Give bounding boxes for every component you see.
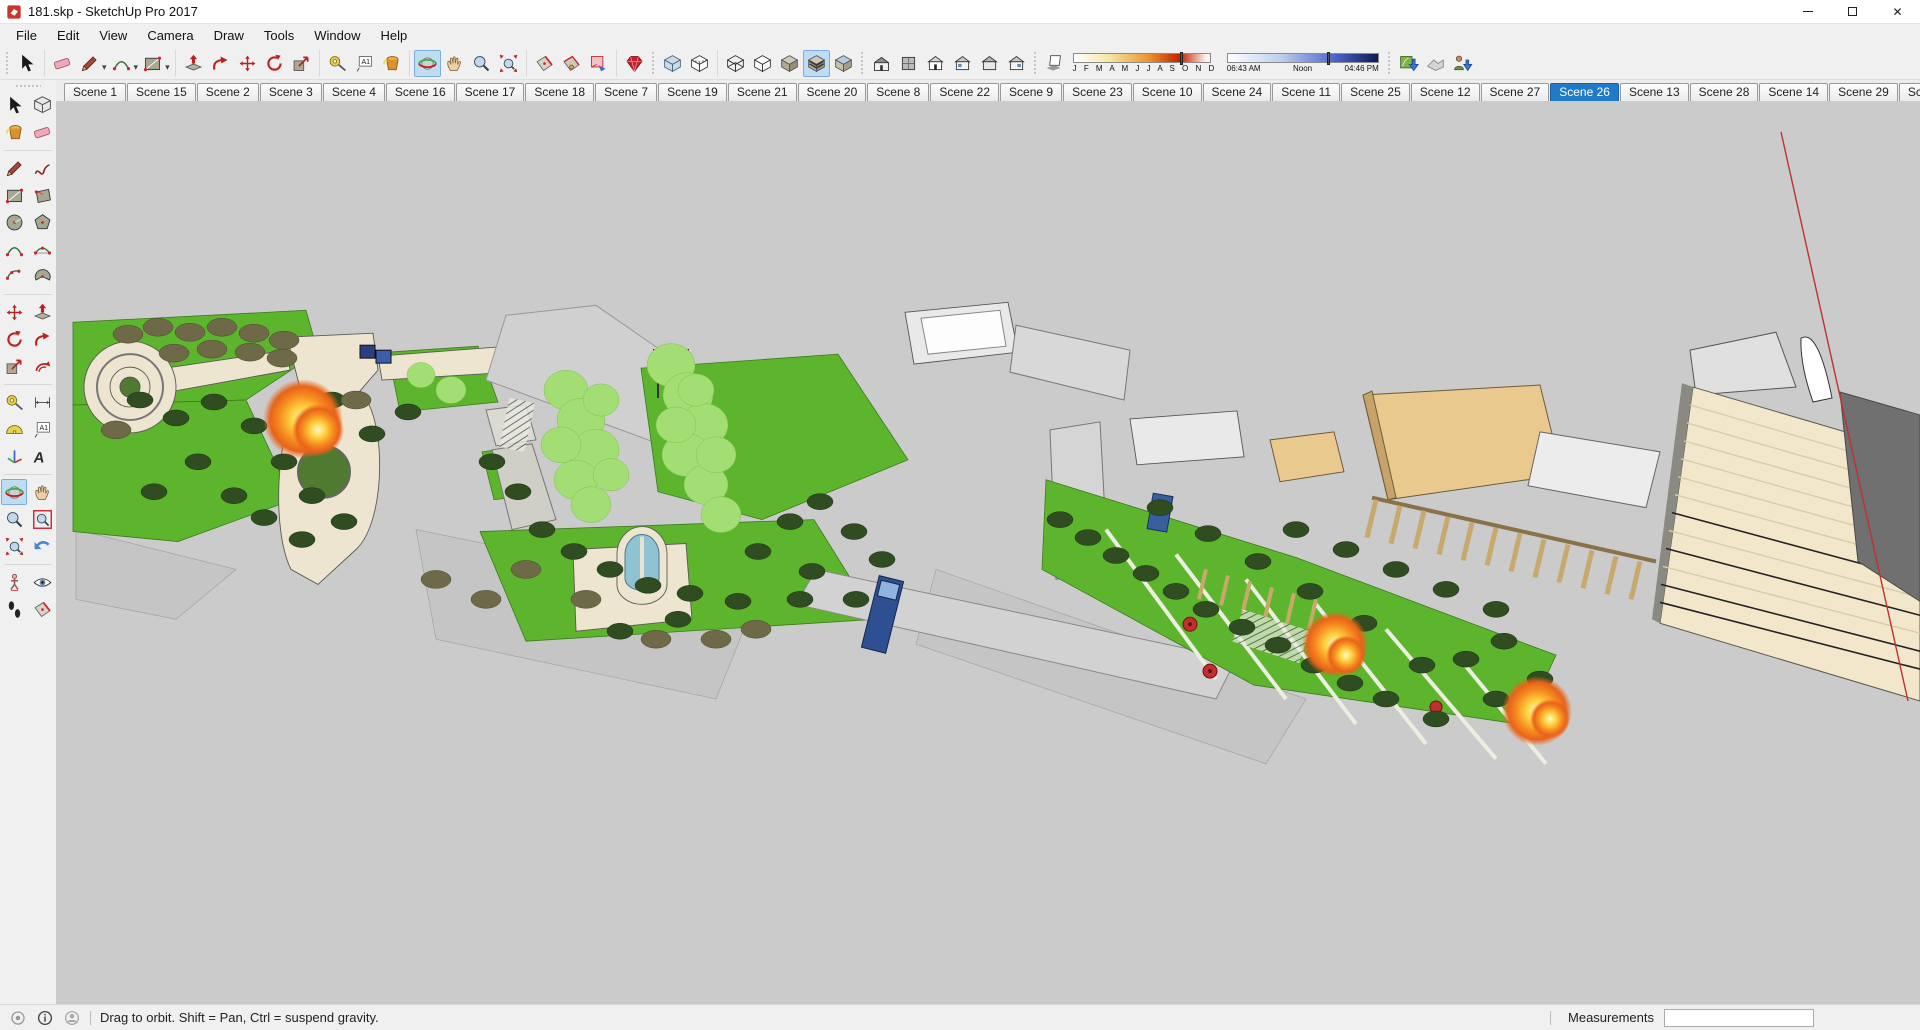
toolbar-drag-handle[interactable]: [5, 51, 10, 75]
zoomext-icon: [498, 53, 519, 74]
rotate-tool-button[interactable]: [1, 326, 27, 352]
tree: [1337, 675, 1363, 691]
minimize-button[interactable]: [1785, 0, 1830, 23]
rect-icon: [142, 53, 163, 74]
model-canvas[interactable]: [56, 101, 1920, 1004]
shaded-button[interactable]: [776, 50, 803, 77]
orbit-icon: [4, 482, 25, 503]
offset-tool-button[interactable]: [29, 353, 55, 379]
tree: [561, 544, 587, 560]
tree: [1245, 553, 1271, 569]
tree: [359, 426, 385, 442]
menu-view[interactable]: View: [89, 26, 137, 45]
arc-icon: [111, 53, 132, 74]
zoomext-icon: [4, 536, 25, 557]
scene-tab-scene-17[interactable]: Scene 17: [456, 83, 525, 101]
tree: [163, 410, 189, 426]
toolbar-separator: [717, 50, 718, 76]
tree: [143, 318, 173, 336]
arc2-icon: [32, 239, 53, 260]
x-ray-button[interactable]: [659, 50, 686, 77]
orbit-icon: [417, 53, 438, 74]
polygon-tool-button[interactable]: [29, 209, 55, 235]
scene-tab-scene-13[interactable]: Scene 13: [1620, 83, 1689, 101]
paint-bucket-tool-button[interactable]: [1, 119, 27, 145]
pan-tool-button[interactable]: [29, 479, 55, 505]
tree: [583, 384, 619, 416]
eraser-button[interactable]: [49, 50, 76, 77]
left-view-button[interactable]: [1003, 50, 1030, 77]
rotate-icon: [4, 329, 25, 350]
paint-bucket-button[interactable]: [378, 50, 405, 77]
axes-tool-button[interactable]: [1, 443, 27, 469]
section-icon: [32, 599, 53, 620]
close-button[interactable]: ✕: [1875, 0, 1920, 23]
toolbar-separator: [44, 50, 45, 76]
shadow-date-slider[interactable]: J F M A M J J A S O N D: [1073, 53, 1217, 73]
svg-text:A: A: [32, 449, 45, 466]
tape-icon: [327, 53, 348, 74]
tree: [436, 377, 466, 404]
tree: [239, 324, 269, 342]
3d-text-tool-button[interactable]: A: [29, 443, 55, 469]
palette-separator: [4, 384, 52, 385]
tree: [635, 577, 661, 593]
dimension-icon: [32, 392, 53, 413]
zoom-icon: [471, 53, 492, 74]
scene-tab-scene-24[interactable]: Scene 24: [1203, 83, 1272, 101]
tree: [235, 343, 265, 361]
houseright-icon: [952, 53, 973, 74]
tree: [701, 497, 741, 533]
tree: [289, 532, 315, 548]
scale-button[interactable]: [288, 50, 315, 77]
scene-tab-scene-19[interactable]: Scene 19: [658, 83, 727, 101]
freehand-tool-button[interactable]: [29, 155, 55, 181]
section-plane-button[interactable]: [531, 50, 558, 77]
geolocation-icon[interactable]: [9, 1009, 27, 1027]
cubexray-icon: [662, 53, 683, 74]
scene-tab-scene-23[interactable]: Scene 23: [1063, 83, 1132, 101]
white-sail: [1801, 337, 1832, 402]
tree: [395, 404, 421, 420]
menu-window[interactable]: Window: [304, 26, 370, 45]
pie-icon: [32, 266, 53, 287]
tree: [207, 318, 237, 336]
tree: [571, 590, 601, 608]
cubeshaded-icon: [779, 53, 800, 74]
followme-icon: [210, 53, 231, 74]
scene-tab-scene-20[interactable]: Scene 20: [798, 83, 867, 101]
pie-tool-button[interactable]: [29, 263, 55, 289]
tree: [331, 514, 357, 530]
tape-measure-tool-button[interactable]: [1, 389, 27, 415]
palette-drag-handle[interactable]: [15, 84, 41, 89]
cubemono-icon: [833, 53, 854, 74]
zoom-tool-button[interactable]: [1, 506, 27, 532]
text-button[interactable]: A1: [351, 50, 378, 77]
cubeback-icon: [689, 53, 710, 74]
tree: [1433, 581, 1459, 597]
tree: [471, 590, 501, 608]
arc-button[interactable]: [108, 50, 135, 77]
photo-textures-button[interactable]: [1449, 50, 1476, 77]
three-point-arc-tool-button[interactable]: [1, 263, 27, 289]
walk-icon: [4, 599, 25, 620]
shadow-time-labels: 06:43 AMNoon04:46 PM: [1227, 64, 1379, 73]
cursor-icon: [16, 53, 37, 74]
tree: [529, 522, 555, 538]
terrain-icon: [1425, 53, 1446, 74]
rotate-icon: [264, 53, 285, 74]
arc3-icon: [4, 266, 25, 287]
arc-tool-button[interactable]: [1, 236, 27, 262]
line-button[interactable]: [76, 50, 103, 77]
tape-icon: [4, 392, 25, 413]
push-pull-button[interactable]: [180, 50, 207, 77]
tree: [1229, 619, 1255, 635]
tree: [843, 591, 869, 607]
move-icon: [237, 53, 258, 74]
rotate-button[interactable]: [261, 50, 288, 77]
tree: [677, 585, 703, 601]
svg-text:A1: A1: [361, 58, 370, 65]
zoom-window-tool-button[interactable]: [29, 506, 55, 532]
tree: [777, 514, 803, 530]
tree: [1047, 512, 1073, 528]
housetop-icon: [898, 53, 919, 74]
polygon-icon: [32, 212, 53, 233]
text3d-icon: A: [32, 446, 53, 467]
top-view-button[interactable]: [895, 50, 922, 77]
follow-me-tool-button[interactable]: [29, 326, 55, 352]
tree: [101, 421, 131, 439]
followme-icon: [32, 329, 53, 350]
walk-tool-button[interactable]: [1, 596, 27, 622]
scene-tab-scene-8[interactable]: Scene 8: [867, 83, 929, 101]
measurements-separator: [1550, 1011, 1551, 1025]
tree: [571, 487, 611, 523]
palette-separator: [4, 294, 52, 295]
tree: [869, 552, 895, 568]
tree: [607, 623, 633, 639]
tree: [141, 484, 167, 500]
tree: [678, 374, 714, 406]
tree: [113, 325, 143, 343]
main-toolbar: ▾▾▾A1J F M A M J J A S O N D06:43 AMNoon…: [0, 47, 1920, 80]
shaded-with-textures-button[interactable]: [803, 50, 830, 77]
tree: [1409, 657, 1435, 673]
scene-tab-scene-1[interactable]: Scene 1: [64, 83, 126, 101]
wireframe-button[interactable]: [722, 50, 749, 77]
axes-icon: [4, 446, 25, 467]
bucket-icon: [4, 122, 25, 143]
select-button[interactable]: [13, 50, 40, 77]
position-camera-tool-button[interactable]: [1, 569, 27, 595]
monochrome-button[interactable]: [830, 50, 857, 77]
make-component-tool-button[interactable]: [29, 92, 55, 118]
scene-tab-scene-15[interactable]: Scene 15: [127, 83, 196, 101]
toolbar-drag-handle[interactable]: [1033, 51, 1038, 75]
rotated-rectangle-tool-button[interactable]: [29, 182, 55, 208]
zoomwin-icon: [32, 509, 53, 530]
offset-icon: [32, 356, 53, 377]
line-tool-button[interactable]: [1, 155, 27, 181]
tree: [799, 563, 825, 579]
tree: [1163, 583, 1189, 599]
close-icon: ✕: [1892, 5, 1902, 19]
tree: [841, 524, 867, 540]
eraser-icon: [52, 53, 73, 74]
rectangle-button[interactable]: [139, 50, 166, 77]
scene-tab-scene-7[interactable]: Scene 7: [595, 83, 657, 101]
dimension-tool-button[interactable]: [29, 389, 55, 415]
hidden-line-button[interactable]: [749, 50, 776, 77]
display-section-planes-button[interactable]: [558, 50, 585, 77]
tree: [741, 620, 771, 638]
protractor-tool-button[interactable]: [1, 416, 27, 442]
scene-tab-scene-12[interactable]: Scene 12: [1411, 83, 1480, 101]
tree: [511, 560, 541, 578]
pan-button[interactable]: [441, 50, 468, 77]
front-view-button[interactable]: [922, 50, 949, 77]
status-bar: Drag to orbit. Shift = Pan, Ctrl = suspe…: [0, 1004, 1920, 1030]
menu-camera[interactable]: Camera: [137, 26, 203, 45]
scene-tab-scene-26[interactable]: Scene 26: [1550, 83, 1619, 101]
back-view-button[interactable]: [976, 50, 1003, 77]
tree: [541, 427, 581, 463]
tree: [185, 454, 211, 470]
tree: [787, 591, 813, 607]
right-view-button[interactable]: [949, 50, 976, 77]
tree: [1373, 691, 1399, 707]
rotrect-icon: [32, 185, 53, 206]
scene-tab-bar: Scene 1Scene 15Scene 2Scene 3Scene 4Scen…: [56, 80, 1920, 101]
tree: [696, 437, 736, 473]
tree: [221, 488, 247, 504]
minimize-icon: [1803, 11, 1813, 12]
cubehidden-icon: [752, 53, 773, 74]
houseiso-icon: [871, 53, 892, 74]
tree: [807, 494, 833, 510]
toolbar-drag-handle[interactable]: [651, 51, 656, 75]
circle-tool-button[interactable]: [1, 209, 27, 235]
scene-tab-scene-18[interactable]: Scene 18: [525, 83, 594, 101]
tree: [1193, 601, 1219, 617]
rectangle-tool-button[interactable]: [1, 182, 27, 208]
pencil-icon: [79, 53, 100, 74]
measurements-input[interactable]: [1664, 1009, 1814, 1027]
circle-icon: [4, 212, 25, 233]
pan-icon: [32, 482, 53, 503]
shadow-time-slider[interactable]: 06:43 AMNoon04:46 PM: [1227, 53, 1379, 73]
move-tool-button[interactable]: [1, 299, 27, 325]
scene-tab-scene-9[interactable]: Scene 9: [1000, 83, 1062, 101]
tree: [1423, 711, 1449, 727]
sectionp-icon: [561, 53, 582, 74]
scale-icon: [291, 53, 312, 74]
tree: [656, 407, 696, 443]
tree: [597, 561, 623, 577]
restore-button[interactable]: [1830, 0, 1875, 23]
tree: [251, 510, 277, 526]
menu-help[interactable]: Help: [371, 26, 418, 45]
tree: [267, 349, 297, 367]
menu-edit[interactable]: Edit: [47, 26, 89, 45]
measurements-label: Measurements: [1568, 1010, 1654, 1025]
scene-tab-scene-22[interactable]: Scene 22: [930, 83, 999, 101]
menu-bar: FileEditViewCameraDrawToolsWindowHelp: [0, 24, 1920, 47]
section-icon: [534, 53, 555, 74]
eye-icon: [32, 572, 53, 593]
freehand-icon: [32, 158, 53, 179]
scale-tool-button[interactable]: [1, 353, 27, 379]
model-viewport[interactable]: [56, 101, 1920, 1004]
pan-icon: [444, 53, 465, 74]
eraser-icon: [32, 122, 53, 143]
tree: [159, 344, 189, 362]
menu-tools[interactable]: Tools: [254, 26, 304, 45]
look-around-tool-button[interactable]: [29, 569, 55, 595]
scene-tab-scene-11[interactable]: Scene 11: [1272, 83, 1340, 101]
palette-separator: [4, 150, 52, 151]
move-icon: [4, 302, 25, 323]
pushpull-icon: [32, 302, 53, 323]
tree: [1265, 637, 1291, 653]
two-point-arc-tool-button[interactable]: [29, 236, 55, 262]
push-pull-tool-button[interactable]: [29, 299, 55, 325]
scene-tab-scene-30[interactable]: Scene 30: [1899, 83, 1920, 101]
scene-tab-scene-28[interactable]: Scene 28: [1690, 83, 1759, 101]
sketchup-logo-icon: [6, 4, 22, 20]
scene-tab-scene-4[interactable]: Scene 4: [323, 83, 385, 101]
tree: [1075, 530, 1101, 546]
houseback-icon: [979, 53, 1000, 74]
tree: [299, 488, 325, 504]
zoom-icon: [4, 509, 25, 530]
poscam-icon: [4, 572, 25, 593]
move-button[interactable]: [234, 50, 261, 77]
tree: [201, 394, 227, 410]
orbit-button[interactable]: [414, 50, 441, 77]
component-icon: [32, 95, 53, 116]
tree: [175, 323, 205, 341]
toolbar-drag-handle[interactable]: [1387, 51, 1392, 75]
tree: [1383, 561, 1409, 577]
tree: [421, 570, 451, 588]
follow-me-button[interactable]: [207, 50, 234, 77]
cubewire-icon: [725, 53, 746, 74]
scene-tab-scene-2[interactable]: Scene 2: [197, 83, 259, 101]
tree: [127, 392, 153, 408]
tree: [745, 544, 771, 560]
tree: [269, 331, 299, 349]
tree: [341, 391, 371, 409]
bucket-icon: [381, 53, 402, 74]
shadowtog-icon: [1044, 53, 1065, 74]
status-separator: [90, 1011, 91, 1025]
pencil-icon: [4, 158, 25, 179]
toggle-shadows-button[interactable]: [1041, 50, 1068, 77]
toolbar-separator: [319, 50, 320, 76]
section-plane-tool-button[interactable]: [29, 596, 55, 622]
gem-icon: [624, 53, 645, 74]
window-title: 181.skp - SketchUp Pro 2017: [28, 4, 198, 19]
menu-file[interactable]: File: [6, 26, 47, 45]
scene-tab-scene-21[interactable]: Scene 21: [728, 83, 797, 101]
zoom-extents-button[interactable]: [495, 50, 522, 77]
scene-tab-scene-3[interactable]: Scene 3: [260, 83, 322, 101]
sectionc-icon: [588, 53, 609, 74]
back-edges-button[interactable]: [686, 50, 713, 77]
arc-icon: [4, 239, 25, 260]
tree: [1297, 583, 1323, 599]
add-location-button[interactable]: [1395, 50, 1422, 77]
tree: [407, 363, 435, 388]
tree: [1195, 526, 1221, 542]
tree: [1491, 633, 1517, 649]
pushpull-icon: [183, 53, 204, 74]
scene-tab-scene-29[interactable]: Scene 29: [1829, 83, 1898, 101]
tree: [1483, 601, 1509, 617]
text-tool-button[interactable]: A1: [29, 416, 55, 442]
tree: [725, 593, 751, 609]
iso-view-button[interactable]: [868, 50, 895, 77]
toggle-terrain-button[interactable]: [1422, 50, 1449, 77]
tree: [1453, 651, 1479, 667]
palette-separator: [4, 474, 52, 475]
toolbar-drag-handle[interactable]: [860, 51, 865, 75]
scene-tab-scene-10[interactable]: Scene 10: [1133, 83, 1202, 101]
phototex-icon: [1452, 53, 1473, 74]
tree: [1133, 565, 1159, 581]
tape-measure-button[interactable]: [324, 50, 351, 77]
title-bar: 181.skp - SketchUp Pro 2017 ✕: [0, 0, 1920, 24]
eraser-tool-button[interactable]: [29, 119, 55, 145]
tree: [593, 459, 629, 491]
cursor-icon: [4, 95, 25, 116]
sign-in-icon[interactable]: [63, 1009, 81, 1027]
model-info-icon[interactable]: [36, 1009, 54, 1027]
tree: [479, 454, 505, 470]
select-tool-button[interactable]: [1, 92, 27, 118]
scene-tab-scene-14[interactable]: Scene 14: [1759, 83, 1828, 101]
menu-draw[interactable]: Draw: [204, 26, 254, 45]
scene-tab-scene-16[interactable]: Scene 16: [386, 83, 455, 101]
display-section-cuts-button[interactable]: [585, 50, 612, 77]
ruby-extension-button[interactable]: [621, 50, 648, 77]
toolbar-separator: [616, 50, 617, 76]
tree: [1333, 542, 1359, 558]
zoom-extents-tool-button[interactable]: [1, 533, 27, 559]
large-tool-set: A1A: [0, 80, 56, 1004]
scene-tab-scene-27[interactable]: Scene 27: [1481, 83, 1550, 101]
protractor-icon: [4, 419, 25, 440]
tree: [1147, 500, 1173, 516]
previous-tool-button[interactable]: [29, 533, 55, 559]
zoom-button[interactable]: [468, 50, 495, 77]
toolbar-separator: [409, 50, 410, 76]
tree: [701, 630, 731, 648]
scene-tab-scene-25[interactable]: Scene 25: [1341, 83, 1410, 101]
svg-text:A1: A1: [39, 424, 48, 431]
houseleft-icon: [1006, 53, 1027, 74]
orbit-tool-button[interactable]: [1, 479, 27, 505]
addloc-icon: [1398, 53, 1419, 74]
previous-icon: [32, 536, 53, 557]
grand-stairs: [1652, 332, 1920, 701]
text-icon: A1: [354, 53, 375, 74]
